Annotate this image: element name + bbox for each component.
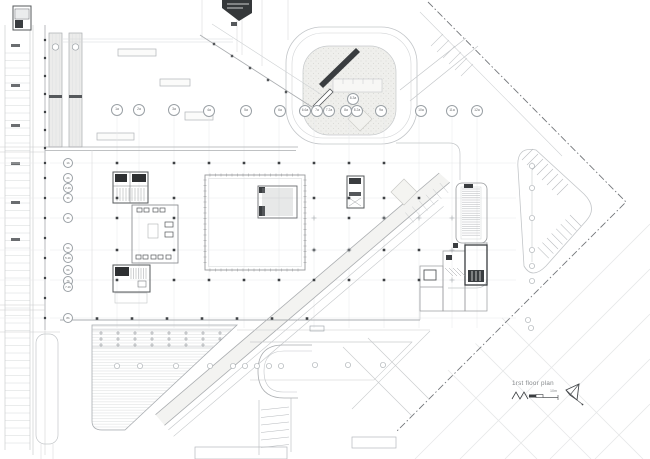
legend [512,384,583,405]
floor-plan-canvas: 1a2a3a4a5a6a6.6a7a7.2a8.3a8a8.2a9a10a11a… [0,0,650,459]
diagonal-walkway [156,173,450,436]
structural-grid [0,116,516,328]
paving-hatch [398,224,650,459]
hairpin-road [258,345,312,398]
drop-off-loop [286,27,417,144]
scale-bar [512,392,558,400]
scale-max-label: 10m [550,389,557,393]
east-ramp [456,183,487,243]
plan-title: 1rst floor plan [512,380,554,387]
atrium [204,174,307,272]
north-arrow-icon [566,384,583,405]
site-boundary-and-roads [396,2,626,432]
stair-core-north [222,0,252,21]
parking-east [518,149,592,273]
ramp-strips [49,33,82,147]
planters [97,49,213,140]
building-floor-plate [45,143,487,320]
